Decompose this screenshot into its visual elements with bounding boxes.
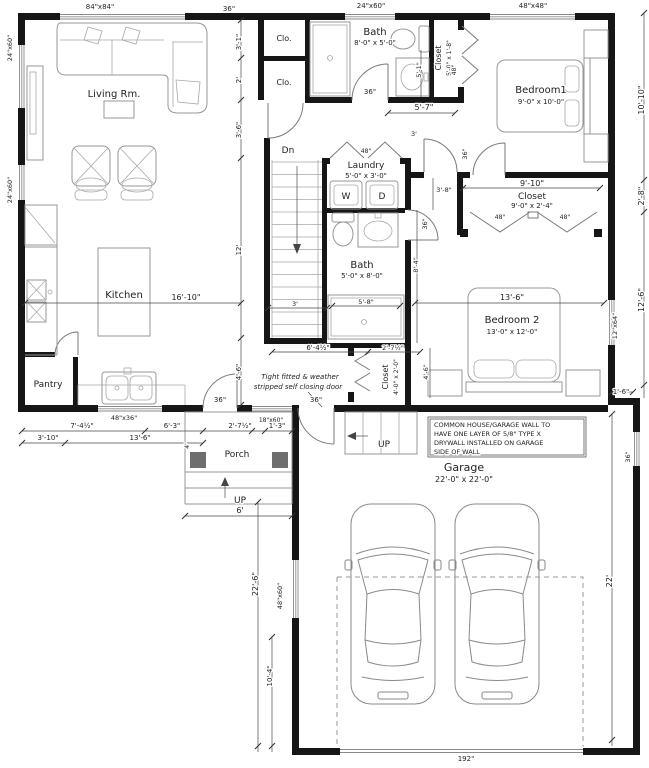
- window-label-garage-right: 36": [624, 451, 632, 462]
- window-label-garage-left: 48"x60": [276, 583, 284, 609]
- note-door-line2: stripped self closing door: [254, 383, 343, 391]
- window-label-kitchen: 48"x36": [111, 414, 137, 422]
- dim-kitchen-width: 16'-10": [171, 293, 200, 302]
- dim-closet3-width: 2'-7½": [382, 344, 404, 352]
- note-garage-wall-line4: SIDE OF WALL: [434, 448, 480, 456]
- fridge: [25, 205, 57, 245]
- room-size-bedroom2: 13'-0" x 12'-0": [487, 328, 538, 336]
- porch-up-arrow: [221, 477, 229, 486]
- dim-right-0: 10'-10": [637, 85, 646, 114]
- note-garage-wall-line1: COMMON HOUSE/GARAGE WALL TO: [434, 421, 550, 429]
- label-up-garage: UP: [378, 440, 391, 450]
- room-label-bedroom1: Bedroom1: [515, 85, 567, 96]
- room-label-clo1: Clo.: [276, 34, 291, 43]
- window-label-top-bath: 24"x60": [357, 2, 385, 10]
- room-size-laundry: 5'-0" x 3'-0": [345, 172, 387, 180]
- dim-left-3: 12': [235, 245, 243, 256]
- dim-hall-3: 3': [411, 130, 417, 138]
- dim-hall-6-4: 6'-4½": [306, 344, 329, 352]
- room-label-closet1: Closet: [434, 46, 443, 71]
- dimension-lines: [19, 10, 647, 752]
- dim-bottom1-2: 2'-7½": [228, 422, 251, 430]
- tv-console: [27, 66, 43, 160]
- dim-left-4: 4'-6": [235, 364, 243, 381]
- room-label-garage: Garage: [444, 461, 485, 474]
- window-label-top36: 36": [223, 5, 235, 13]
- dryer-letter: D: [379, 192, 386, 202]
- door-label-bifold-closet2b: 48": [560, 214, 571, 221]
- room-label-clo2: Clo.: [276, 78, 291, 87]
- tv: [30, 72, 36, 134]
- dim-stair-width: 3': [292, 300, 298, 308]
- window-label-bedroom1: 48"x48": [519, 2, 547, 10]
- room-label-bedroom2: Bedroom 2: [485, 315, 540, 326]
- dim-left-0: 3'-1": [235, 34, 243, 51]
- room-label-porch: Porch: [225, 450, 250, 460]
- stairs: [272, 160, 322, 338]
- laundry-fixtures: [330, 181, 398, 209]
- toilet2: [332, 213, 354, 246]
- dim-closet2-width: 9'-10": [520, 179, 544, 188]
- entry-up-arrow: [347, 432, 356, 440]
- living-room-furniture: [27, 23, 207, 200]
- window-label-living: 84"x84": [86, 3, 114, 11]
- room-label-closet3: Closet: [381, 365, 390, 390]
- door-label-bifold-laundry: 48": [361, 148, 372, 155]
- door-label-kitchen: 36": [214, 396, 226, 404]
- door-label-bifold-closet1: 48": [451, 65, 458, 76]
- dim-bedroom2-width: 13'-6": [500, 293, 524, 302]
- stairs-down-arrow: [293, 244, 301, 254]
- kitchen-sink: [102, 368, 156, 404]
- washer-letter: W: [342, 192, 351, 202]
- door-label-bath1: 36": [364, 88, 376, 96]
- toilet1: [391, 26, 429, 52]
- room-label-kitchen: Kitchen: [105, 290, 143, 301]
- armchair: [118, 146, 156, 200]
- floor-plan: 84"x84" 36" 24"x60" 48"x48" 24"x60" 24"x…: [0, 0, 649, 768]
- dim-bottom1-0: 7'-4½": [70, 422, 93, 430]
- room-label-bath2: Bath: [350, 260, 373, 271]
- nightstand: [428, 370, 462, 396]
- cooktop: [27, 280, 52, 322]
- coffee-table: [104, 101, 134, 118]
- garage-clear-area: [337, 577, 583, 747]
- door-label-bifold-closet2a: 48": [495, 214, 506, 221]
- window-label-bedroom2: 12"x64": [611, 313, 619, 339]
- dim-porch-width: 6': [236, 506, 243, 515]
- nightstand: [584, 134, 608, 162]
- room-size-bedroom1: 9'-0" x 10'-0": [518, 98, 564, 106]
- dim-left-1: 2': [235, 77, 243, 83]
- car: [345, 504, 441, 704]
- porch-post: [272, 452, 288, 468]
- sink1: [396, 58, 429, 96]
- sink2: [358, 213, 398, 247]
- dim-garage-height: 22': [605, 575, 614, 587]
- window-label-left2: 24"x60": [6, 177, 14, 203]
- room-label-laundry: Laundry: [348, 161, 385, 171]
- dim-right-3: 1'-6": [613, 388, 630, 396]
- dim-hall-3-8: 3'-8": [436, 186, 451, 194]
- room-size-bath2: 5'-0" x 8'-0": [341, 272, 383, 280]
- dim-bottom2-1: 13'-6": [129, 434, 150, 442]
- dim-bottom2-2: 4': [184, 443, 191, 449]
- kitchen-fixtures: [25, 205, 185, 405]
- porch-post: [190, 452, 206, 468]
- dim-right-1: 2'-8": [637, 187, 646, 206]
- dim-hall-5-7: 5'-7": [415, 103, 434, 112]
- room-label-closet2: Closet: [518, 192, 547, 202]
- note-garage-wall-line3: DRYWALL INSTALLED ON GARAGE: [434, 439, 543, 447]
- garage-door-line: [340, 750, 583, 753]
- room-size-closet3: 4'-0" x 2'-0": [393, 359, 400, 395]
- note-garage-wall-line2: HAVE ONE LAYER OF 5/8" TYPE X: [434, 430, 542, 438]
- dim-bath2-8-4: 8'-4": [412, 257, 420, 272]
- shower1: [310, 22, 350, 96]
- room-size-bath1: 8'-0" x 5'-0": [354, 39, 396, 47]
- room-label-bath1: Bath: [363, 27, 386, 38]
- nightstand: [566, 370, 600, 396]
- dim-bottom2-0: 3'-10": [37, 434, 58, 442]
- room-size-garage: 22'-0" x 22'-0": [435, 475, 493, 484]
- door-label-bath2: 36": [421, 218, 429, 229]
- label-dn: Dn: [282, 146, 295, 156]
- dim-left-2: 3'-6": [235, 122, 243, 139]
- nightstand: [584, 30, 608, 58]
- room-label-living: Living Rm.: [88, 89, 141, 100]
- dim-garage-left-10-4: 10'-4": [266, 665, 274, 686]
- dim-shower-5-8: 5'-8": [358, 298, 373, 306]
- armchair: [72, 146, 110, 200]
- window-label-left1: 24"x60": [6, 35, 14, 61]
- dim-bath1-5-1: 5'-1": [415, 62, 423, 77]
- dim-garage-left-22-6: 22'-6": [251, 572, 260, 596]
- room-label-pantry: Pantry: [34, 380, 63, 390]
- car: [449, 504, 545, 704]
- door-label-garage-entry: 36": [310, 396, 322, 404]
- note-door-line1: Tight fitted & weather: [261, 373, 340, 381]
- garage-door-label: 192": [458, 755, 475, 763]
- dim-bottom1-3: 1'-3": [269, 422, 286, 430]
- label-up-porch: UP: [234, 496, 247, 506]
- dim-bottom1-1: 6'-3": [164, 422, 181, 430]
- bedroom1-furniture: [497, 30, 608, 162]
- dim-closet3-side: 4'-6": [422, 364, 430, 379]
- bed1: [497, 60, 583, 132]
- room-size-closet2: 9'-0" x 2'-4": [511, 202, 553, 210]
- floor-plan-drawing: 84"x84" 36" 24"x60" 48"x48" 24"x60" 24"x…: [0, 0, 649, 768]
- dim-right-2: 12'-6": [637, 288, 646, 312]
- bedroom2-furniture: [428, 288, 600, 396]
- door-label-bedroom1: 36": [461, 148, 469, 159]
